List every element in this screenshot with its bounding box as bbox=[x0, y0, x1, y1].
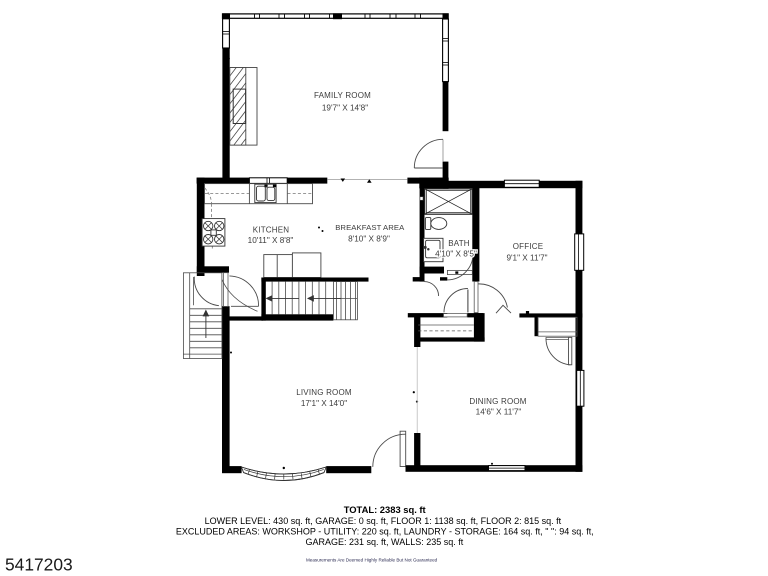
svg-text:8'10" X 8'9": 8'10" X 8'9" bbox=[348, 235, 390, 244]
svg-text:FAMILY ROOM: FAMILY ROOM bbox=[314, 91, 371, 100]
svg-text:DINING ROOM: DINING ROOM bbox=[469, 397, 526, 406]
svg-text:TOTAL: 2383 sq. ft: TOTAL: 2383 sq. ft bbox=[344, 504, 426, 515]
svg-text:OFFICE: OFFICE bbox=[513, 242, 544, 251]
svg-text:BATH: BATH bbox=[448, 239, 470, 248]
svg-text:KITCHEN: KITCHEN bbox=[253, 226, 290, 235]
svg-text:9'1" X 11'7": 9'1" X 11'7" bbox=[506, 254, 547, 263]
svg-text:19'7" X 14'8": 19'7" X 14'8" bbox=[322, 103, 368, 112]
svg-text:14'6" X 11'7": 14'6" X 11'7" bbox=[476, 408, 522, 417]
svg-text:GARAGE: 231 sq. ft, WALLS: 235: GARAGE: 231 sq. ft, WALLS: 235 sq. ft bbox=[306, 537, 464, 547]
svg-text:10'11" X 8'8": 10'11" X 8'8" bbox=[248, 236, 294, 245]
svg-text:BREAKFAST AREA: BREAKFAST AREA bbox=[335, 223, 405, 232]
svg-text:Measurements Are Deemed Highly: Measurements Are Deemed Highly Reliable … bbox=[306, 558, 438, 563]
svg-text:17'1" X 14'0": 17'1" X 14'0" bbox=[301, 399, 347, 408]
svg-text:5417203: 5417203 bbox=[5, 555, 73, 575]
svg-text:4'10" X 8'5": 4'10" X 8'5" bbox=[435, 250, 477, 259]
svg-text:EXCLUDED AREAS: WORKSHOP - UTI: EXCLUDED AREAS: WORKSHOP - UTILITY: 220 … bbox=[176, 527, 594, 537]
svg-text:LIVING ROOM: LIVING ROOM bbox=[296, 388, 352, 397]
svg-text:LOWER LEVEL: 430 sq. ft, GARAG: LOWER LEVEL: 430 sq. ft, GARAGE: 0 sq. f… bbox=[205, 516, 562, 526]
